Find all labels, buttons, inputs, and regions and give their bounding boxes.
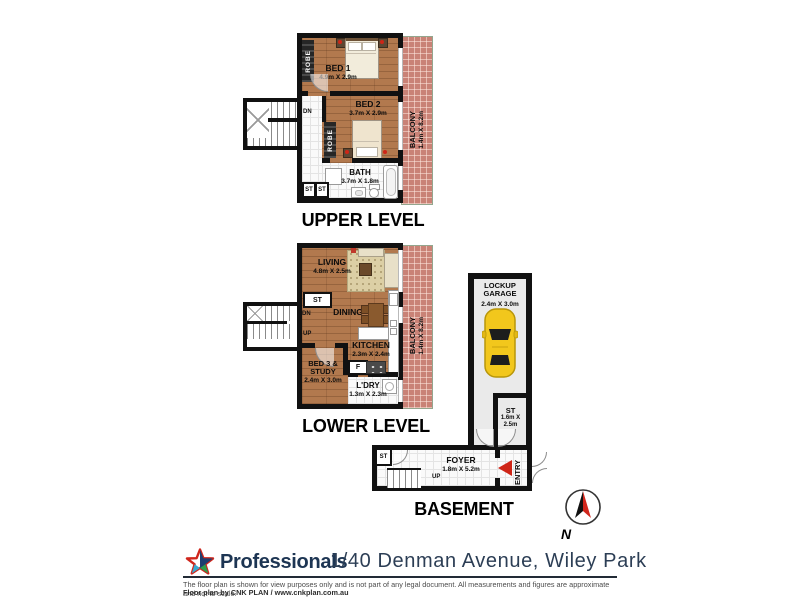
brand-name: Professionals [220, 551, 347, 574]
garage-label: LOCKUP GARAGE 2.4m X 3.0m [474, 282, 526, 308]
lower-balcony: BALCONY 1.4m X 8.2m [401, 245, 433, 409]
bath-dim: 3.7m X 1.8m [332, 178, 388, 185]
property-address: 1/40 Denman Avenue, Wiley Park [330, 550, 647, 573]
foyer-st-label: ST [380, 454, 388, 460]
bed2-lamp-left [345, 150, 349, 154]
bed1-name: BED 1 [310, 64, 366, 74]
upper-st1: ST [302, 182, 316, 198]
kitchen-label: KITCHEN 2.3m X 2.4m [344, 341, 398, 358]
footer-divider [183, 576, 617, 578]
upper-window-bed1 [398, 48, 403, 86]
kitchen-knob2 [390, 328, 397, 335]
kitchen-bench [358, 327, 390, 340]
entry-door-arc-2 [532, 468, 547, 483]
laundry-label: L'DRY 1.3m X 2.3m [348, 382, 388, 398]
fridge-label: F [356, 364, 360, 371]
upper-st2: ST [315, 182, 329, 198]
upper-balcony-dim: 1.4m X 8.2m [418, 111, 425, 149]
basement-storage-dim: 1.6m X 2.5m [495, 415, 526, 428]
garage-block: LOCKUP GARAGE 2.4m X 3.0m ST 1.6m X 2.5m [468, 273, 532, 452]
living-name: LIVING [306, 258, 358, 268]
upper-st2-label: ST [318, 187, 326, 193]
living-cushion [351, 248, 356, 253]
living-dim: 4.8m X 2.5m [306, 268, 358, 275]
credit-text: Floor plan by CNK PLAN / www.cnkplan.com… [183, 588, 623, 597]
bed2-label: BED 2 3.7m X 2.9m [340, 100, 396, 117]
lower-level-plan: LIVING 4.8m X 2.5m ST DN UP DINING KITCH… [297, 243, 403, 409]
basement-up-label: UP [432, 474, 440, 480]
lower-window-dining [398, 307, 403, 323]
upper-level-title: UPPER LEVEL [278, 210, 448, 231]
laundry-dim: 1.3m X 2.3m [348, 391, 388, 398]
foyer-st-closet: ST [377, 450, 392, 466]
upper-balcony-label: BALCONY 1.4m X 8.2m [402, 95, 430, 165]
lower-balcony-name: BALCONY [408, 317, 417, 354]
garage-line2: GARAGE [474, 290, 526, 298]
entry-label: ENTRY [513, 451, 522, 485]
lower-st-label: ST [313, 297, 322, 304]
kitchen-name: KITCHEN [344, 341, 398, 351]
foyer-dim: 1.8m X 5.2m [435, 466, 487, 473]
foyer-label: FOYER 1.8m X 5.2m [435, 456, 487, 473]
laundry-name: L'DRY [348, 382, 388, 391]
stove [366, 361, 386, 374]
basement-title: BASEMENT [379, 499, 549, 520]
lower-stairs [243, 302, 302, 351]
lower-window-living [398, 250, 403, 292]
bath-label: BATH 3.7m X 1.8m [332, 169, 388, 185]
upper-dn-label: DN [303, 109, 312, 115]
compass-icon [562, 487, 604, 527]
upper-balcony: BALCONY 1.4m X 8.2m [401, 36, 433, 205]
upper-window-bath [398, 166, 403, 190]
bath-sink [351, 187, 366, 198]
basement-stairs [387, 468, 421, 488]
floorplan-page: BALCONY 1.4m X 8.2m ROBE BED 1 4.9m X 2.… [0, 0, 800, 600]
bed1-door-arc [310, 74, 328, 92]
lower-balcony-label: BALCONY 1.4m X 8.2m [402, 301, 430, 371]
foyer-door-arc [393, 450, 408, 465]
professionals-star-icon [184, 548, 216, 578]
living-label: LIVING 4.8m X 2.5m [306, 258, 358, 275]
bed2-bed [352, 120, 382, 162]
lower-up-label: UP [303, 331, 311, 337]
upper-robe2: ROBE [324, 122, 336, 158]
upper-level-plan: ROBE BED 1 4.9m X 2.9m DN ROBE BED 2 3.7… [297, 33, 403, 203]
dining-table [368, 303, 384, 327]
lower-window-laundry [398, 380, 403, 402]
upper-robe2-label: ROBE [327, 129, 334, 152]
upper-stairs [243, 98, 302, 150]
foyer-block: ST UP FOYER 1.8m X 5.2m ENTRY [372, 445, 532, 491]
bed1-lamp-right [380, 40, 384, 44]
basement-storage-label: ST 1.6m X 2.5m [495, 407, 526, 429]
bed3-label: BED 3 & STUDY 2.4m X 3.0m [302, 360, 344, 384]
bed3-dim: 2.4m X 3.0m [302, 377, 344, 384]
living-sofa-top [358, 248, 384, 257]
kitchen-dim: 2.3m X 2.4m [344, 351, 398, 358]
fridge-box: F [348, 360, 368, 375]
entry-door-arc-1 [532, 452, 547, 467]
bed2-lamp-right [383, 150, 387, 154]
kitchen-knob1 [390, 320, 397, 327]
lower-level-title: LOWER LEVEL [281, 416, 451, 437]
upper-window-bed2 [398, 102, 403, 150]
lower-st-closet: ST [303, 292, 332, 308]
upper-balcony-name: BALCONY [408, 111, 417, 148]
lower-balcony-dim: 1.4m X 8.2m [418, 317, 425, 355]
kitchen-sink [389, 293, 398, 306]
living-sofa-right [384, 253, 399, 288]
car-top-view [482, 307, 518, 379]
lower-dn-label: DN [302, 311, 311, 317]
bath-name: BATH [332, 169, 388, 178]
stair-winder [247, 102, 269, 138]
bed2-dim: 3.7m X 2.9m [340, 110, 396, 117]
entry-arrow [498, 460, 512, 476]
coffee-table [359, 263, 372, 276]
compass-n-label: N [556, 526, 576, 542]
upper-st1-label: ST [305, 187, 313, 193]
bed1-lamp-left [338, 40, 342, 44]
bed2-name: BED 2 [340, 100, 396, 110]
toilet [368, 184, 379, 197]
basement-storage-name: ST [495, 407, 526, 415]
bed3-line2: STUDY [302, 368, 344, 376]
foyer-name: FOYER [435, 456, 487, 466]
